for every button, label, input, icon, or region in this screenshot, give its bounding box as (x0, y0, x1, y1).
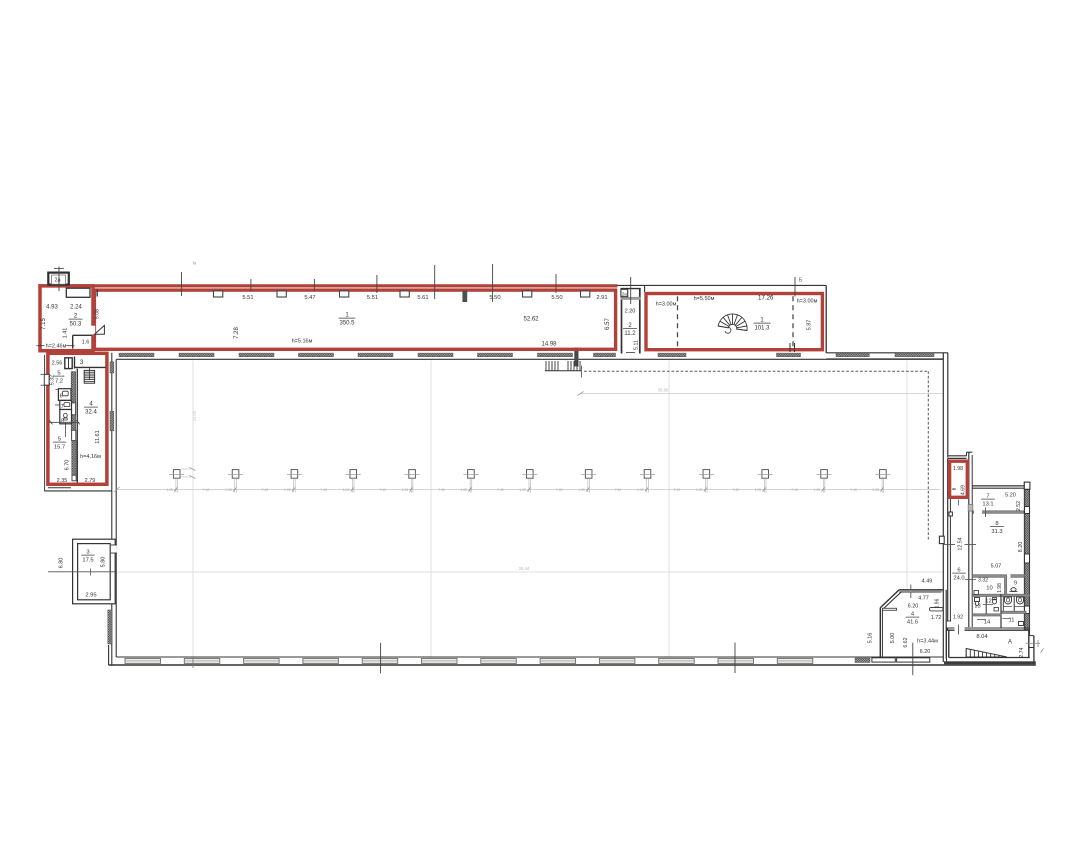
svg-text:2а: 2а (54, 278, 61, 284)
svg-text:32.4: 32.4 (85, 410, 97, 416)
svg-text:5: 5 (57, 371, 60, 377)
svg-text:Iı: Iı (193, 261, 196, 266)
svg-text:в: в (952, 487, 958, 490)
svg-text:h=4.16м: h=4.16м (80, 454, 101, 460)
svg-text:24.05: 24.05 (192, 410, 197, 421)
svg-text:1.05: 1.05 (696, 488, 703, 492)
svg-text:6.57: 6.57 (605, 318, 611, 330)
svg-text:17.26: 17.26 (758, 295, 774, 302)
svg-text:5.61: 5.61 (417, 295, 428, 301)
svg-text:4.93: 4.93 (46, 305, 58, 311)
svg-text:26.44: 26.44 (519, 566, 530, 571)
svg-text:1.05: 1.05 (460, 488, 467, 492)
svg-text:3: 3 (86, 550, 89, 556)
svg-text:h=5.50м: h=5.50м (694, 296, 715, 302)
svg-text:52.62: 52.62 (523, 317, 539, 323)
svg-text:15.7: 15.7 (54, 445, 65, 451)
svg-text:11.61: 11.61 (95, 430, 101, 443)
svg-text:24.0: 24.0 (953, 576, 964, 582)
svg-text:1.6: 1.6 (82, 340, 90, 346)
svg-text:5.20: 5.20 (1005, 493, 1016, 499)
svg-text:2.95: 2.95 (85, 593, 96, 599)
svg-text:14: 14 (984, 620, 991, 626)
svg-text:4.77: 4.77 (918, 596, 929, 602)
svg-text:1.05: 1.05 (519, 488, 526, 492)
svg-text:7.40: 7.40 (438, 488, 445, 492)
svg-text:8.20: 8.20 (1018, 542, 1024, 553)
svg-text:7.2: 7.2 (55, 379, 63, 385)
svg-text:14.98: 14.98 (541, 342, 557, 348)
svg-text:1.05: 1.05 (578, 488, 585, 492)
svg-text:6.70: 6.70 (65, 460, 71, 471)
svg-text:7.40: 7.40 (497, 488, 504, 492)
svg-text:1.05: 1.05 (284, 488, 291, 492)
svg-text:2.35: 2.35 (57, 478, 68, 484)
svg-text:h=3.44м: h=3.44м (917, 639, 938, 645)
svg-text:7.28: 7.28 (234, 327, 240, 339)
svg-text:1.05: 1.05 (755, 488, 762, 492)
svg-text:2.24: 2.24 (70, 305, 82, 311)
svg-text:6: 6 (957, 568, 960, 574)
svg-text:41.6: 41.6 (907, 620, 918, 626)
svg-text:1.92: 1.92 (953, 615, 963, 621)
svg-text:7.40: 7.40 (615, 488, 622, 492)
svg-text:31.3: 31.3 (991, 529, 1002, 535)
svg-text:1.41: 1.41 (63, 328, 69, 339)
svg-text:2.20: 2.20 (625, 309, 636, 315)
svg-text:6: 6 (60, 393, 63, 399)
svg-text:7.40: 7.40 (732, 488, 739, 492)
svg-text:h=2.46м: h=2.46м (46, 344, 67, 350)
svg-text:9: 9 (1014, 581, 1017, 587)
svg-text:7.40: 7.40 (379, 488, 386, 492)
svg-text:1.98: 1.98 (953, 466, 963, 472)
svg-text:А: А (1008, 640, 1012, 646)
svg-text:1.05: 1.05 (225, 488, 232, 492)
svg-text:10: 10 (986, 586, 992, 592)
svg-text:5.51: 5.51 (367, 295, 378, 301)
svg-text:h=3.00м: h=3.00м (656, 302, 677, 308)
svg-text:1.05: 1.05 (872, 488, 879, 492)
svg-text:350.5: 350.5 (339, 321, 355, 327)
svg-text:6.20: 6.20 (908, 604, 919, 610)
svg-text:7.40: 7.40 (262, 488, 269, 492)
svg-text:7.40: 7.40 (674, 488, 681, 492)
svg-text:1.98: 1.98 (997, 583, 1003, 593)
svg-text:5.80: 5.80 (101, 557, 107, 568)
svg-text:h=5.16м: h=5.16м (292, 339, 313, 345)
svg-text:101.3: 101.3 (754, 326, 770, 332)
svg-text:3: 3 (80, 359, 84, 366)
svg-text:h=3.00м: h=3.00м (797, 299, 818, 305)
svg-text:12.54: 12.54 (958, 537, 964, 550)
svg-text:13.1: 13.1 (982, 502, 993, 508)
svg-text:1.05: 1.05 (166, 488, 173, 492)
svg-text:5.50: 5.50 (551, 295, 562, 301)
svg-text:1.05: 1.05 (343, 488, 350, 492)
svg-text:1.05: 1.05 (402, 488, 409, 492)
svg-text:5.16: 5.16 (868, 633, 874, 644)
svg-text:6.80: 6.80 (59, 558, 65, 569)
svg-text:7.40: 7.40 (791, 488, 798, 492)
svg-text:3.32: 3.32 (978, 578, 988, 584)
svg-text:2.52: 2.52 (1016, 501, 1022, 511)
svg-text:2.79: 2.79 (85, 478, 96, 484)
svg-text:5.50: 5.50 (489, 295, 500, 301)
svg-text:7.40: 7.40 (850, 488, 857, 492)
svg-text:7: 7 (986, 494, 989, 500)
svg-text:8: 8 (61, 418, 64, 424)
svg-text:5: 5 (58, 437, 61, 443)
svg-text:6.62: 6.62 (903, 637, 909, 647)
svg-text:5.00: 5.00 (890, 633, 896, 644)
svg-text:2а: 2а (622, 291, 628, 296)
svg-text:2.91: 2.91 (596, 295, 607, 301)
svg-text:5.08: 5.08 (95, 309, 101, 319)
svg-text:2.56: 2.56 (52, 361, 63, 367)
svg-text:5.47: 5.47 (304, 295, 315, 301)
svg-text:5.51: 5.51 (242, 295, 253, 301)
svg-text:50.3: 50.3 (70, 322, 82, 328)
svg-text:8: 8 (995, 521, 998, 527)
svg-text:1.05: 1.05 (637, 488, 644, 492)
svg-text:4.49: 4.49 (922, 579, 933, 585)
svg-text:11.2: 11.2 (624, 331, 636, 337)
svg-text:7.15: 7.15 (41, 318, 47, 330)
svg-text:17.5: 17.5 (82, 558, 93, 564)
svg-text:5.87: 5.87 (807, 320, 813, 331)
svg-text:1.96: 1.96 (935, 598, 941, 608)
svg-text:7.40: 7.40 (320, 488, 327, 492)
svg-text:8.04: 8.04 (976, 634, 988, 640)
svg-text:5.07: 5.07 (991, 564, 1002, 570)
svg-text:1.05: 1.05 (814, 488, 821, 492)
svg-text:5.11: 5.11 (634, 340, 640, 350)
svg-text:36.95: 36.95 (658, 388, 669, 393)
svg-text:2.74: 2.74 (1019, 647, 1025, 657)
svg-text:6.20: 6.20 (920, 649, 931, 655)
svg-text:4.69: 4.69 (961, 485, 967, 495)
svg-text:12: 12 (985, 599, 991, 605)
svg-text:1.72: 1.72 (931, 615, 942, 621)
svg-text:7.40: 7.40 (203, 488, 210, 492)
svg-text:7.40: 7.40 (556, 488, 563, 492)
